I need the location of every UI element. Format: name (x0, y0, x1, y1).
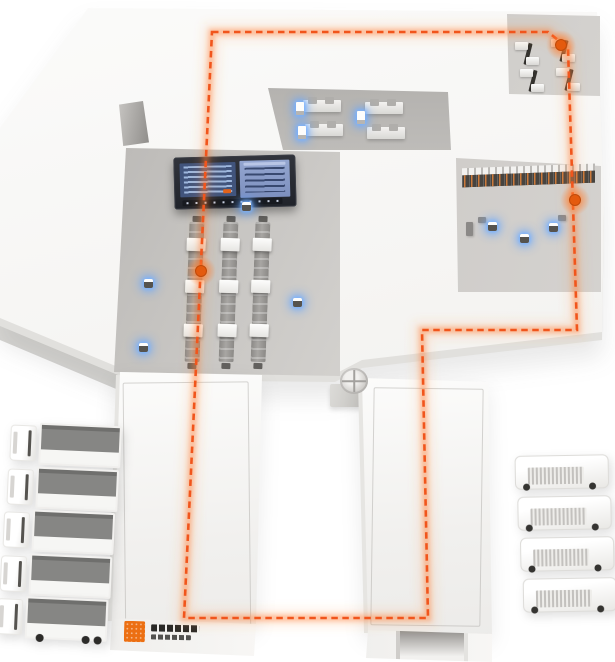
control-dashboard (169, 150, 303, 217)
office-terminal (298, 126, 306, 139)
machine-clamp (556, 68, 569, 76)
office-terminal (357, 111, 365, 124)
cnc-machine (515, 42, 541, 66)
office-terminal (296, 102, 304, 115)
machine-clamp (562, 54, 575, 62)
truck-right (520, 536, 615, 572)
truck-left (2, 508, 116, 555)
truck-right (517, 495, 612, 531)
truck-wheel (35, 634, 43, 642)
factory-illustration (0, 0, 615, 662)
truck-cab (0, 555, 27, 592)
wing-roof (108, 368, 266, 660)
truck-trailer (28, 553, 112, 599)
truck-left (9, 421, 123, 468)
truck-cargo-ribs (533, 549, 589, 567)
truck-left (0, 552, 113, 599)
conveyor-carrier (251, 280, 270, 294)
truck-trailer (38, 423, 122, 469)
hvac-fan-icon (340, 368, 368, 394)
cnc-machine (551, 39, 577, 63)
rack-bank-upper (462, 164, 595, 213)
office-desk (303, 100, 341, 112)
conveyor-carrier (183, 324, 202, 338)
truck-cargo-ribs (530, 508, 586, 526)
truck-cab (9, 424, 37, 461)
conveyor-carrier (185, 280, 204, 294)
truck-wheel (81, 636, 89, 644)
cnc-machine (520, 69, 546, 93)
floor-equipment (466, 222, 473, 236)
truck-wheel (523, 484, 530, 491)
floor-equipment (558, 215, 566, 221)
iot-sensor (520, 234, 529, 243)
truck-wheel (592, 523, 599, 530)
truck-cargo-ribs (528, 467, 584, 485)
roof-inset-line (370, 387, 483, 627)
office-desk (305, 124, 343, 136)
truck-cargo-ribs (536, 590, 592, 608)
machine-clamp (520, 69, 533, 77)
conveyor-carrier (252, 238, 271, 252)
conveyor-carrier (217, 324, 236, 338)
office-desk (365, 102, 403, 114)
loading-wing-right (356, 374, 498, 640)
truck-cab (3, 511, 31, 548)
truck-wheel (589, 482, 596, 489)
truck-wheel (531, 606, 538, 613)
truck-cab (6, 468, 34, 505)
truck-left (0, 595, 109, 642)
dock-panel-row (184, 1, 528, 28)
conveyor-carrier (186, 238, 205, 252)
truck-column-right (515, 454, 615, 626)
truck-cab (0, 598, 23, 635)
truck-wheel (526, 525, 533, 532)
logo-text-line-2 (151, 634, 191, 640)
wing-roof (356, 374, 498, 640)
loading-wing-left (108, 368, 266, 660)
truck-trailer (35, 466, 119, 512)
machine-clamp (515, 42, 528, 50)
conveyor-carrier (219, 280, 238, 294)
truck-right (523, 577, 615, 613)
truck-wheel (597, 605, 604, 612)
office-desk (367, 127, 405, 139)
machine-clamp (531, 84, 544, 92)
rack-bank-lower (483, 237, 585, 291)
logo-text-line-1 (151, 624, 199, 632)
truck-trailer (31, 510, 115, 556)
truck-wheel (528, 566, 535, 573)
iot-sensor (549, 223, 558, 232)
dashboard-data-panel (179, 162, 236, 197)
iot-sensor (144, 279, 153, 288)
logo-grid-icon (124, 621, 145, 642)
truck-wheel (594, 564, 601, 571)
iot-sensor (139, 343, 148, 352)
machine-clamp (567, 83, 580, 91)
truck-right (515, 454, 610, 490)
iot-sensor (488, 222, 497, 231)
rack-row (462, 164, 595, 188)
truck-wheel (93, 636, 101, 644)
truck-left (6, 465, 120, 512)
iot-sensor (293, 298, 302, 307)
machine-clamp (551, 39, 564, 47)
roof-inset-line (123, 381, 252, 646)
conveyor-carrier (249, 324, 268, 338)
machine-clamp (526, 57, 539, 65)
conveyor-carrier (220, 238, 239, 252)
floor-equipment (478, 217, 486, 223)
company-logo (124, 621, 234, 647)
iot-sensor (242, 202, 251, 211)
dashboard-stats-panel (239, 160, 290, 198)
cnc-machine (556, 68, 582, 92)
truck-column-left (1, 421, 131, 656)
